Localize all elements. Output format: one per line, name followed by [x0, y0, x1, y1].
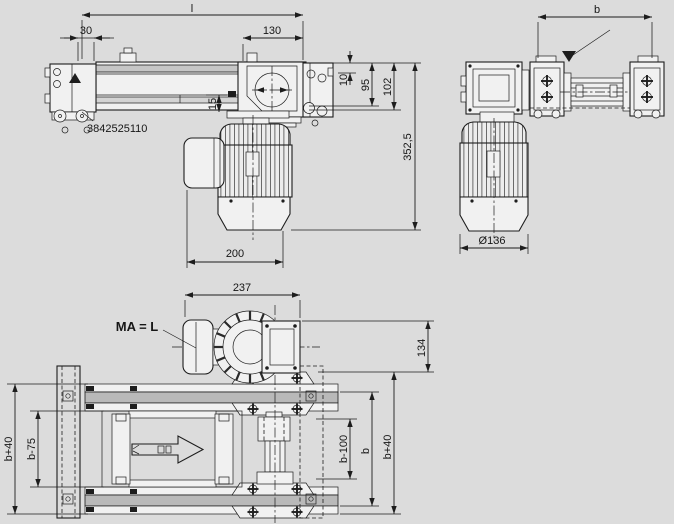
plan-view: MA = L 237 b+40 b-75 b-100 b b+40 134	[3, 282, 434, 523]
frame-interior	[102, 411, 242, 487]
motor-end-cap	[183, 320, 213, 374]
gearbox-fin-dome	[220, 124, 290, 145]
front-motor	[184, 111, 292, 240]
dim-b-plus-40-right-label: b+40	[382, 435, 394, 460]
dim-15-label: 15	[207, 98, 219, 110]
left-leg-post	[57, 366, 80, 518]
dim-b-label: b	[594, 4, 600, 16]
dim-30-label: 30	[80, 25, 92, 37]
torque-note-label: MA = L	[116, 319, 159, 334]
dim-95-label: 95	[360, 79, 372, 91]
reference-flag-icon	[562, 30, 610, 62]
motor-nameplate	[246, 152, 259, 176]
dim-l-label: l	[191, 3, 193, 15]
beam-top-tab	[120, 53, 136, 62]
part-number-label: 3842525110	[87, 123, 147, 135]
end-view: b Ø136	[460, 4, 664, 254]
motor-nameplate	[487, 151, 500, 177]
dim-102-label: 102	[382, 78, 394, 96]
dim-130-label: 130	[263, 25, 281, 37]
dim-237-label: 237	[233, 282, 251, 294]
front-view: 3842525110	[45, 3, 421, 268]
right-section-bracket	[630, 56, 664, 118]
dim-352-5-label: 352,5	[402, 133, 414, 161]
left-section-bracket	[530, 56, 564, 118]
roller	[54, 110, 66, 122]
roller	[76, 110, 88, 122]
end-gearbox	[461, 62, 529, 114]
end-motor	[460, 112, 528, 242]
technical-drawing-page: 3842525110	[0, 0, 674, 524]
dim-200-label: 200	[226, 248, 244, 260]
motor-end-cap	[218, 197, 290, 230]
dim-dia-136-label: Ø136	[479, 235, 506, 247]
drawing-canvas: 3842525110	[0, 0, 674, 524]
dim-b-minus-75-label: b-75	[26, 438, 38, 460]
dim-134-label: 134	[416, 339, 428, 357]
transport-direction-arrow-icon	[132, 436, 203, 463]
dim-10-label: 10	[338, 74, 350, 86]
dim-b-plan-label: b	[360, 448, 372, 454]
dim-b-plus-40-left-label: b+40	[3, 437, 15, 462]
terminal-box	[184, 138, 224, 188]
right-end-bracket	[303, 63, 333, 126]
dim-b-minus-100-label: b-100	[338, 435, 350, 463]
